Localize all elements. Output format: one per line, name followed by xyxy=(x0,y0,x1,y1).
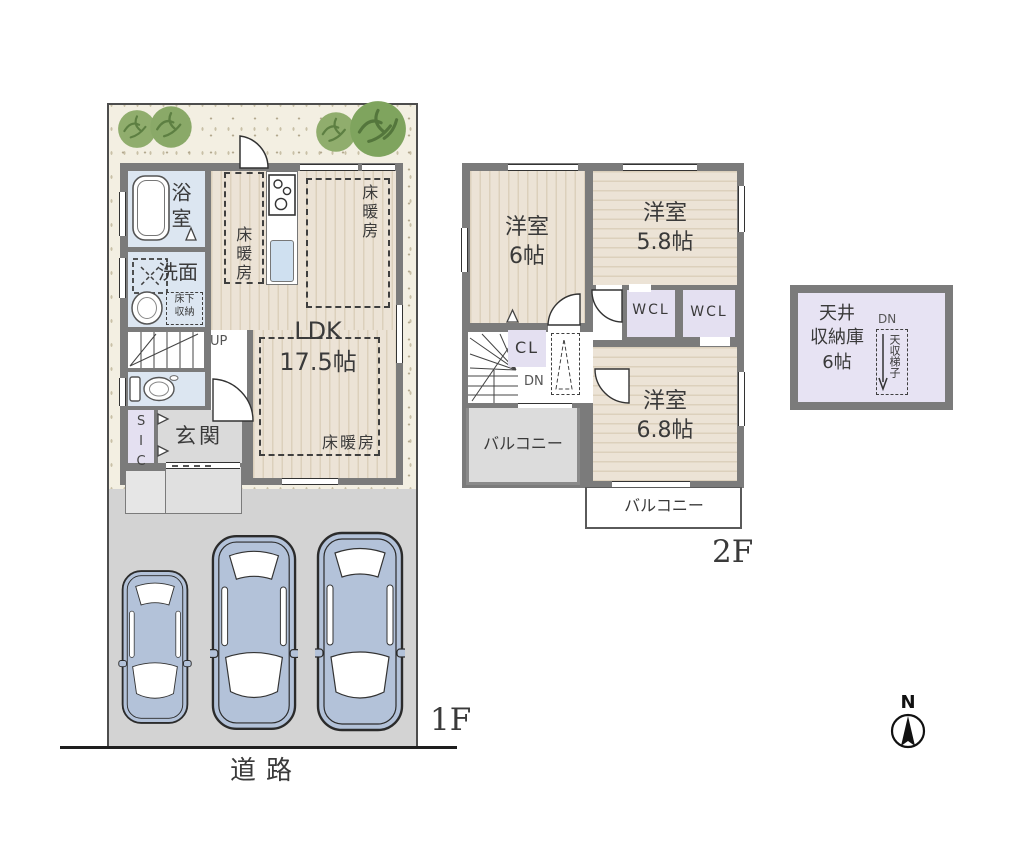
stairs-1f xyxy=(128,332,204,368)
attic-ladder-label: 天収梯子 xyxy=(889,334,900,378)
window xyxy=(738,186,745,232)
kitchen-sink xyxy=(270,240,294,282)
window xyxy=(461,228,468,272)
window xyxy=(300,164,358,171)
up-label: UP xyxy=(210,334,227,350)
folding-door-icon xyxy=(156,412,171,426)
window xyxy=(282,478,338,485)
window xyxy=(623,164,697,171)
floor-plan-page: 床下収納 浴室 洗面 UP SIC 玄関 LDK17.5帖 床暖房 床暖房 床暖… xyxy=(0,0,1024,854)
window xyxy=(362,164,395,171)
entrance-label: 玄関 xyxy=(175,424,223,449)
dn-label: DN xyxy=(524,374,544,390)
washbasin-icon xyxy=(130,290,164,326)
car-icon xyxy=(315,528,405,735)
floor2-label: 2F xyxy=(712,534,753,571)
room6-door-arc xyxy=(546,289,582,327)
window xyxy=(396,305,403,363)
balcony-bottom-label: バルコニー xyxy=(608,496,720,515)
porch xyxy=(165,466,242,514)
attic-storage-label: 天井収納庫6帖 xyxy=(798,302,876,375)
door-opening xyxy=(700,337,730,346)
floor1-label: 1F xyxy=(430,702,471,739)
door-opening xyxy=(583,368,593,402)
road-label: 道路 xyxy=(230,756,302,787)
wcl-right-label: WCL xyxy=(683,304,735,321)
cl-label: CL xyxy=(508,338,546,357)
tree-icon xyxy=(148,104,194,150)
window xyxy=(508,164,578,171)
room68-label: 洋室6.8帖 xyxy=(625,388,705,445)
room6-label: 洋室6帖 xyxy=(495,214,559,271)
closet-door-icon xyxy=(505,308,520,324)
bath-label: 浴室 xyxy=(168,182,192,234)
room58-door-arc xyxy=(590,288,624,324)
attic-ladder-hatch xyxy=(551,333,580,395)
window xyxy=(738,372,745,426)
washroom-label: 洗面 xyxy=(158,260,198,284)
balcony-left-label: バルコニー xyxy=(474,434,572,453)
tree-icon xyxy=(346,98,410,160)
floor-heating-label: 床暖房 xyxy=(322,433,376,452)
porch-step xyxy=(125,470,166,514)
folding-door-icon xyxy=(156,444,171,458)
window xyxy=(119,378,126,406)
ldk-door-arc xyxy=(211,377,255,423)
window xyxy=(119,258,126,298)
window xyxy=(119,192,126,236)
toilet-icon xyxy=(129,374,181,404)
floor-heating-label: 床暖房 xyxy=(359,184,378,241)
wcl-left-label: WCL xyxy=(627,302,675,319)
bathtub-icon xyxy=(131,174,171,242)
sic-label: SIC xyxy=(133,414,149,474)
attic-dn-label: DN xyxy=(878,312,896,326)
entrance-door xyxy=(166,462,240,469)
room58-label: 洋室5.8帖 xyxy=(625,200,705,257)
compass-icon xyxy=(890,711,926,751)
stove-icon xyxy=(268,174,296,216)
road-line xyxy=(60,746,457,749)
ldk-label: LDK17.5帖 xyxy=(254,316,382,378)
front-door-arc xyxy=(238,134,270,170)
door-opening xyxy=(629,284,651,292)
underfloor-storage-label: 床下収納 xyxy=(166,294,203,319)
car-icon xyxy=(210,530,298,735)
floor-heating-label: 床暖房 xyxy=(233,226,252,283)
car-icon xyxy=(118,568,192,726)
